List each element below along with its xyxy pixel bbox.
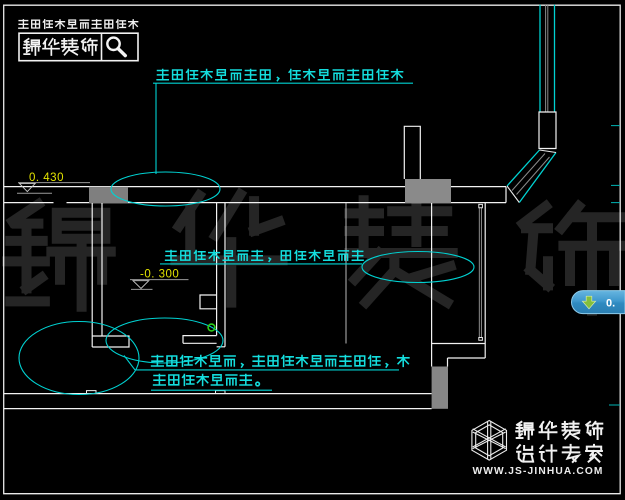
svg-text:0.: 0.: [606, 298, 615, 310]
svg-text:WWW.JS-JINHUA.COM: WWW.JS-JINHUA.COM: [473, 466, 604, 477]
svg-text:-0. 300: -0. 300: [140, 269, 179, 281]
